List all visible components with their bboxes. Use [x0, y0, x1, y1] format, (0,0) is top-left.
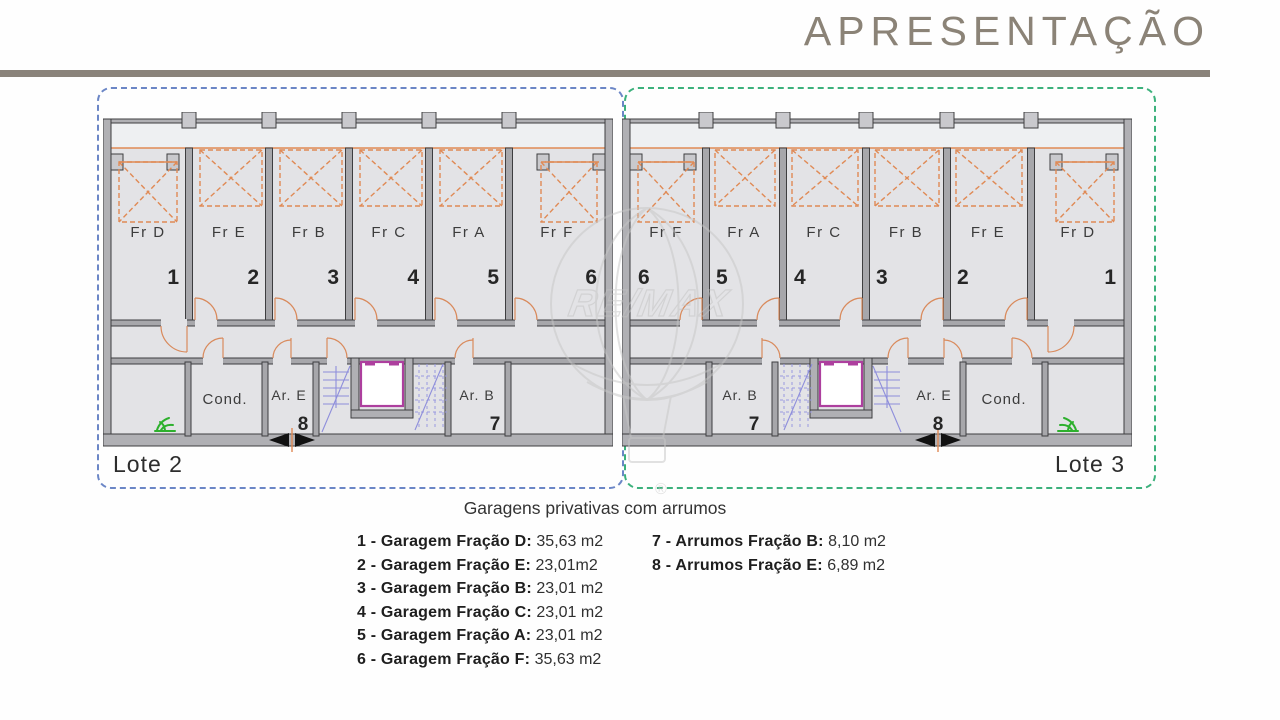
- legend-label: 3 - Garagem Fração B:: [357, 580, 532, 597]
- legend-item: 8 - Arrumos Fração E: 6,89 m2: [652, 554, 886, 578]
- stall-number: 1: [1104, 266, 1116, 289]
- legend-item: 2 - Garagem Fração E: 23,01m2: [357, 554, 603, 578]
- legend-label: 7 - Arrumos Fração B:: [652, 533, 824, 550]
- stall-label: Fr E: [971, 224, 1005, 241]
- legend-label: 1 - Garagem Fração D:: [357, 533, 532, 550]
- legend-label: 6 - Garagem Fração F:: [357, 651, 530, 668]
- legend-value: 23,01 m2: [536, 604, 603, 621]
- stall-label: Fr E: [212, 224, 246, 241]
- room-label-store-b: Ar. B: [459, 387, 494, 403]
- stall-label: Fr B: [292, 224, 326, 241]
- stall-label: Fr A: [452, 224, 486, 241]
- presentation-slide: APRESENTAÇÃO: [0, 0, 1280, 720]
- stall-number: 3: [876, 266, 888, 289]
- legend-value: 23,01m2: [536, 557, 598, 574]
- page-title: APRESENTAÇÃO: [804, 8, 1210, 55]
- legend-item: 5 - Garagem Fração A: 23,01 m2: [357, 624, 603, 648]
- legend-item: 7 - Arrumos Fração B: 8,10 m2: [652, 530, 886, 554]
- legend-value: 8,10 m2: [828, 533, 886, 550]
- legend-value: 35,63 m2: [536, 533, 603, 550]
- elevator: [361, 362, 403, 406]
- registered-mark: ®: [655, 481, 667, 498]
- stall-number: 1: [167, 266, 179, 289]
- room-number-store-e: 8: [933, 414, 944, 435]
- elevator: [820, 362, 862, 406]
- stall-number: 4: [407, 266, 419, 289]
- legend-item: 1 - Garagem Fração D: 35,63 m2: [357, 530, 603, 554]
- legend-value: 35,63 m2: [535, 651, 602, 668]
- stall-label: Fr C: [371, 224, 406, 241]
- lote3-label: Lote 3: [1010, 451, 1125, 478]
- legend-column-garages: 1 - Garagem Fração D: 35,63 m2 2 - Garag…: [357, 530, 603, 671]
- lote2-label: Lote 2: [113, 451, 183, 478]
- legend-label: 2 - Garagem Fração E:: [357, 557, 531, 574]
- legend-value: 23,01 m2: [536, 627, 603, 644]
- stall-number: 4: [794, 266, 806, 289]
- room-number-store-e: 8: [298, 414, 309, 435]
- remax-watermark: RE/MAX ®: [527, 192, 767, 502]
- legend-item: 4 - Garagem Fração C: 23,01 m2: [357, 601, 603, 625]
- stall-number: 2: [957, 266, 969, 289]
- legend-label: 8 - Arrumos Fração E:: [652, 557, 823, 574]
- legend-column-storerooms: 7 - Arrumos Fração B: 8,10 m2 8 - Arrumo…: [652, 530, 886, 577]
- balloon-icon: [551, 208, 743, 462]
- stall-number: 2: [247, 266, 259, 289]
- stall-label: Fr D: [130, 224, 165, 241]
- stall-label: Fr B: [889, 224, 923, 241]
- stall-label: Fr C: [806, 224, 841, 241]
- room-number-store-b: 7: [490, 414, 501, 435]
- stall-label: Fr D: [1060, 224, 1095, 241]
- legend-item: 3 - Garagem Fração B: 23,01 m2: [357, 577, 603, 601]
- stall-number: 5: [487, 266, 499, 289]
- legend-label: 4 - Garagem Fração C:: [357, 604, 532, 621]
- legend-value: 23,01 m2: [536, 580, 603, 597]
- room-label-store-e: Ar. E: [916, 387, 951, 403]
- room-label-cond: Cond.: [981, 391, 1026, 408]
- legend-label: 5 - Garagem Fração A:: [357, 627, 531, 644]
- stall-number: 3: [327, 266, 339, 289]
- remax-wordmark: RE/MAX: [566, 282, 734, 325]
- legend-heading: Garagens privativas com arrumos: [350, 498, 840, 519]
- legend-value: 6,89 m2: [827, 557, 885, 574]
- room-label-store-e: Ar. E: [271, 387, 306, 403]
- room-label-cond: Cond.: [202, 391, 247, 408]
- title-underline-bar: [0, 70, 1210, 77]
- legend-item: 6 - Garagem Fração F: 35,63 m2: [357, 648, 603, 672]
